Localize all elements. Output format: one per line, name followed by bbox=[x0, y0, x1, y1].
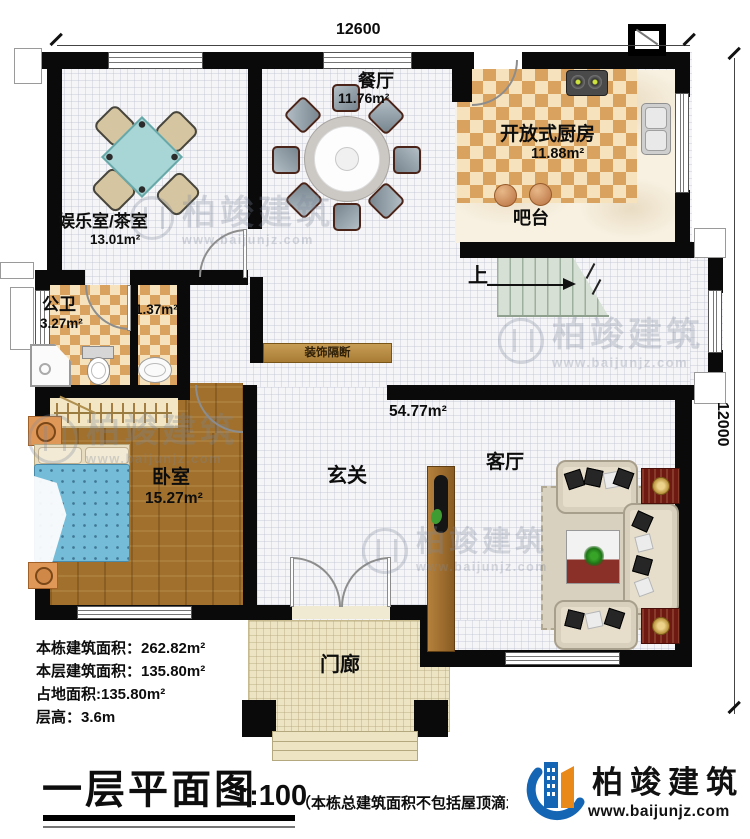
room-label-kitchen: 开放式厨房 bbox=[500, 124, 595, 145]
bathroom-door-leaf bbox=[127, 285, 131, 331]
window-sill bbox=[694, 228, 726, 258]
room-area-kitchen: 11.88m² bbox=[531, 146, 584, 162]
gas-stove bbox=[566, 70, 608, 96]
room-label-hall: 玄关 bbox=[327, 465, 367, 487]
dimension-label-top: 12600 bbox=[336, 21, 381, 39]
entry-door-leaf bbox=[290, 557, 294, 607]
bar-stool bbox=[529, 183, 552, 206]
sofa bbox=[554, 600, 638, 650]
open-area-label: 54.77m² bbox=[389, 403, 447, 420]
window bbox=[675, 93, 689, 193]
dining-chair bbox=[272, 146, 300, 174]
room-area-bedroom: 15.27m² bbox=[145, 490, 203, 507]
room-label-dining: 餐厅 bbox=[358, 71, 394, 91]
wall bbox=[177, 285, 190, 385]
floor-plan: 装饰隔断 柏竣建筑 www.baijunjz.com bbox=[0, 0, 750, 839]
porch-steps bbox=[272, 731, 418, 761]
stairs-arrow-head bbox=[563, 278, 576, 290]
bar-stool bbox=[494, 184, 517, 207]
brand-logo: 柏竣建筑 www.baijunjz.com bbox=[508, 756, 750, 832]
window bbox=[505, 652, 620, 665]
bed bbox=[34, 444, 130, 562]
nightstand bbox=[28, 562, 58, 589]
title-underline-thin bbox=[43, 826, 295, 828]
wall bbox=[203, 52, 323, 69]
wall bbox=[257, 605, 292, 620]
dimension-tick bbox=[682, 33, 695, 46]
decor-partition: 装饰隔断 bbox=[263, 343, 392, 363]
wall bbox=[248, 52, 262, 229]
window bbox=[323, 52, 412, 69]
stairs-arrow bbox=[487, 284, 567, 286]
wall bbox=[452, 69, 472, 102]
brand-site: www.baijunjz.com bbox=[588, 803, 730, 820]
dimension-label-right: 12000 bbox=[713, 402, 731, 447]
room-label-living: 客厅 bbox=[486, 452, 524, 473]
wall bbox=[412, 52, 474, 69]
room-label-bathroom: 公卫 bbox=[42, 295, 76, 314]
dimension-line-right bbox=[734, 58, 735, 714]
wall bbox=[387, 385, 723, 400]
dining-table bbox=[304, 116, 390, 202]
window bbox=[708, 290, 722, 353]
plant bbox=[584, 546, 604, 566]
room-area-bathroom: 3.27m² bbox=[40, 316, 83, 331]
room-area-dining: 11.76m² bbox=[338, 91, 389, 107]
page-title: 一层平面图 bbox=[42, 768, 257, 813]
wall bbox=[675, 52, 690, 97]
room-label-porch: 门廊 bbox=[320, 654, 360, 676]
nightstand bbox=[28, 416, 62, 446]
info-line: 本栋建筑面积：262.82m² bbox=[36, 641, 205, 658]
side-table bbox=[641, 468, 680, 504]
coffee-table bbox=[566, 530, 620, 584]
brand-logo-icon bbox=[514, 760, 586, 828]
window bbox=[108, 52, 203, 69]
window-sill bbox=[10, 287, 34, 350]
title-underline bbox=[43, 815, 295, 821]
entry-door-leaf bbox=[387, 557, 391, 607]
window-sill bbox=[14, 48, 42, 84]
tea-room-door-leaf bbox=[243, 229, 247, 278]
decor-partition-label: 装饰隔断 bbox=[305, 347, 351, 360]
brand-name: 柏竣建筑 bbox=[592, 766, 744, 801]
dimension-line-top bbox=[57, 45, 690, 46]
room-area-bath-niche: 1.37m² bbox=[135, 302, 178, 317]
porch-column bbox=[414, 700, 448, 737]
wall bbox=[250, 277, 263, 363]
room-label-bar: 吧台 bbox=[513, 208, 549, 228]
window-sill bbox=[0, 262, 34, 279]
info-line: 本层建筑面积：135.80m² bbox=[36, 664, 205, 681]
window-sill bbox=[694, 372, 726, 404]
flue-box bbox=[628, 24, 666, 56]
toilet-bowl bbox=[87, 357, 110, 385]
side-table bbox=[641, 608, 680, 644]
wall bbox=[47, 52, 62, 278]
stairs-base-line bbox=[497, 315, 609, 317]
room-label-bedroom: 卧室 bbox=[152, 467, 190, 488]
porch-column bbox=[242, 700, 276, 737]
room-label-tea: 娱乐室/茶室 bbox=[58, 212, 148, 231]
wall bbox=[460, 242, 723, 258]
wall bbox=[675, 190, 690, 245]
info-line: 占地面积:135.80m² bbox=[36, 687, 165, 704]
hall-cabinet bbox=[427, 466, 455, 652]
window bbox=[77, 606, 192, 619]
kitchen-sink bbox=[641, 103, 671, 155]
wall bbox=[35, 270, 85, 285]
stairs-up-label: 上 bbox=[468, 265, 488, 287]
room-area-tea: 13.01m² bbox=[90, 232, 140, 247]
dimension-tick bbox=[49, 33, 62, 46]
dining-chair bbox=[333, 203, 361, 231]
sofa bbox=[623, 503, 679, 615]
wall bbox=[243, 385, 257, 620]
wardrobe bbox=[50, 398, 178, 428]
door-threshold bbox=[292, 606, 390, 619]
info-line: 层高：3.6m bbox=[36, 710, 115, 727]
wall bbox=[130, 285, 138, 385]
dining-chair bbox=[393, 146, 421, 174]
wash-basin bbox=[138, 357, 172, 383]
